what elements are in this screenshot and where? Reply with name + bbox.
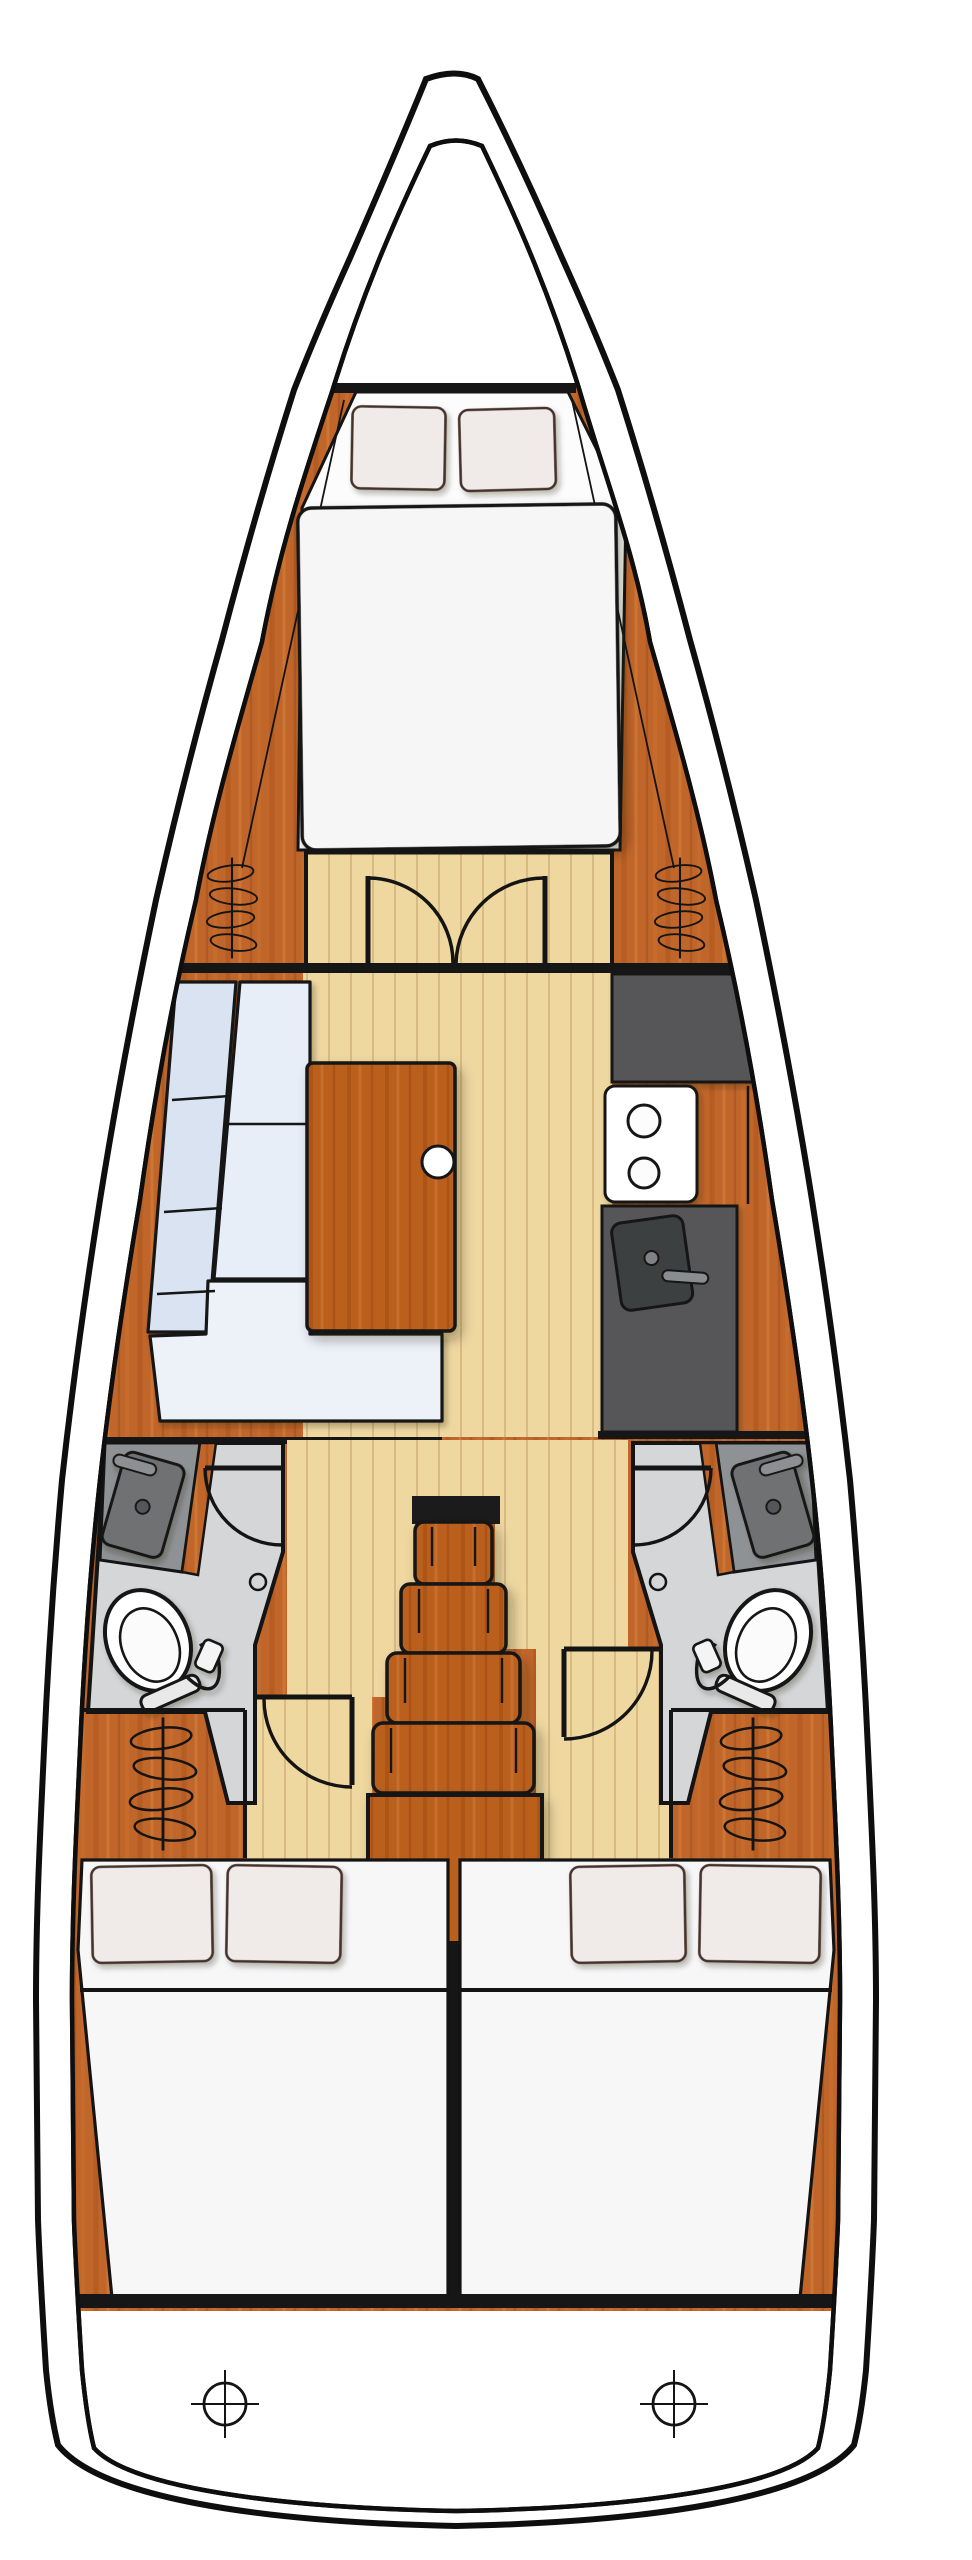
floorplan-svg: Sailing yacht interior layout — top-down… [0, 0, 972, 2560]
galley-sink-unit: Sink with faucet (aft section) [602, 1206, 737, 1432]
table-top [307, 1063, 455, 1331]
step [387, 1653, 520, 1723]
aft-pillow [226, 1865, 342, 1963]
salon-table: Wooden salon table with round knob [307, 1063, 455, 1331]
galley-aft-wall [598, 1431, 822, 1439]
galley-faucet-handle [662, 1270, 709, 1284]
aft-pillow [570, 1865, 686, 1963]
floorplan-canvas: Sailing yacht interior layout — top-down… [0, 0, 972, 2560]
salon: Salon L-shaped settee, port side, light … [96, 973, 822, 1444]
step [373, 1723, 534, 1793]
step [415, 1522, 492, 1584]
vberth-pillow-port [351, 406, 445, 490]
vberth-pillow-starboard [459, 408, 556, 491]
salon-bulkhead [170, 963, 736, 973]
aft-pillow [91, 1865, 213, 1963]
aft-cabin-starboard: Starboard aft double cabin [460, 1860, 834, 2298]
stove-burner-icon [628, 1105, 660, 1137]
galley-stove: Two-burner stove [605, 1086, 697, 1202]
stove-burner-icon [629, 1158, 659, 1188]
aft-cabin-port: Port aft double cabin [78, 1860, 448, 2298]
galley-faucet-base [644, 1250, 660, 1266]
walkway-steps-starboard [495, 1523, 628, 1649]
aft-cabin-divider [449, 1955, 459, 2307]
walkway-aft-starboard [536, 1649, 669, 1862]
companionway-threshold [412, 1496, 500, 1524]
aft-bulkhead [70, 2294, 846, 2308]
step [401, 1584, 506, 1653]
aft-pillow [699, 1865, 821, 1963]
table-knob [422, 1146, 454, 1178]
vberth-mattress [298, 504, 621, 850]
forecabin-bulkhead [330, 383, 576, 393]
